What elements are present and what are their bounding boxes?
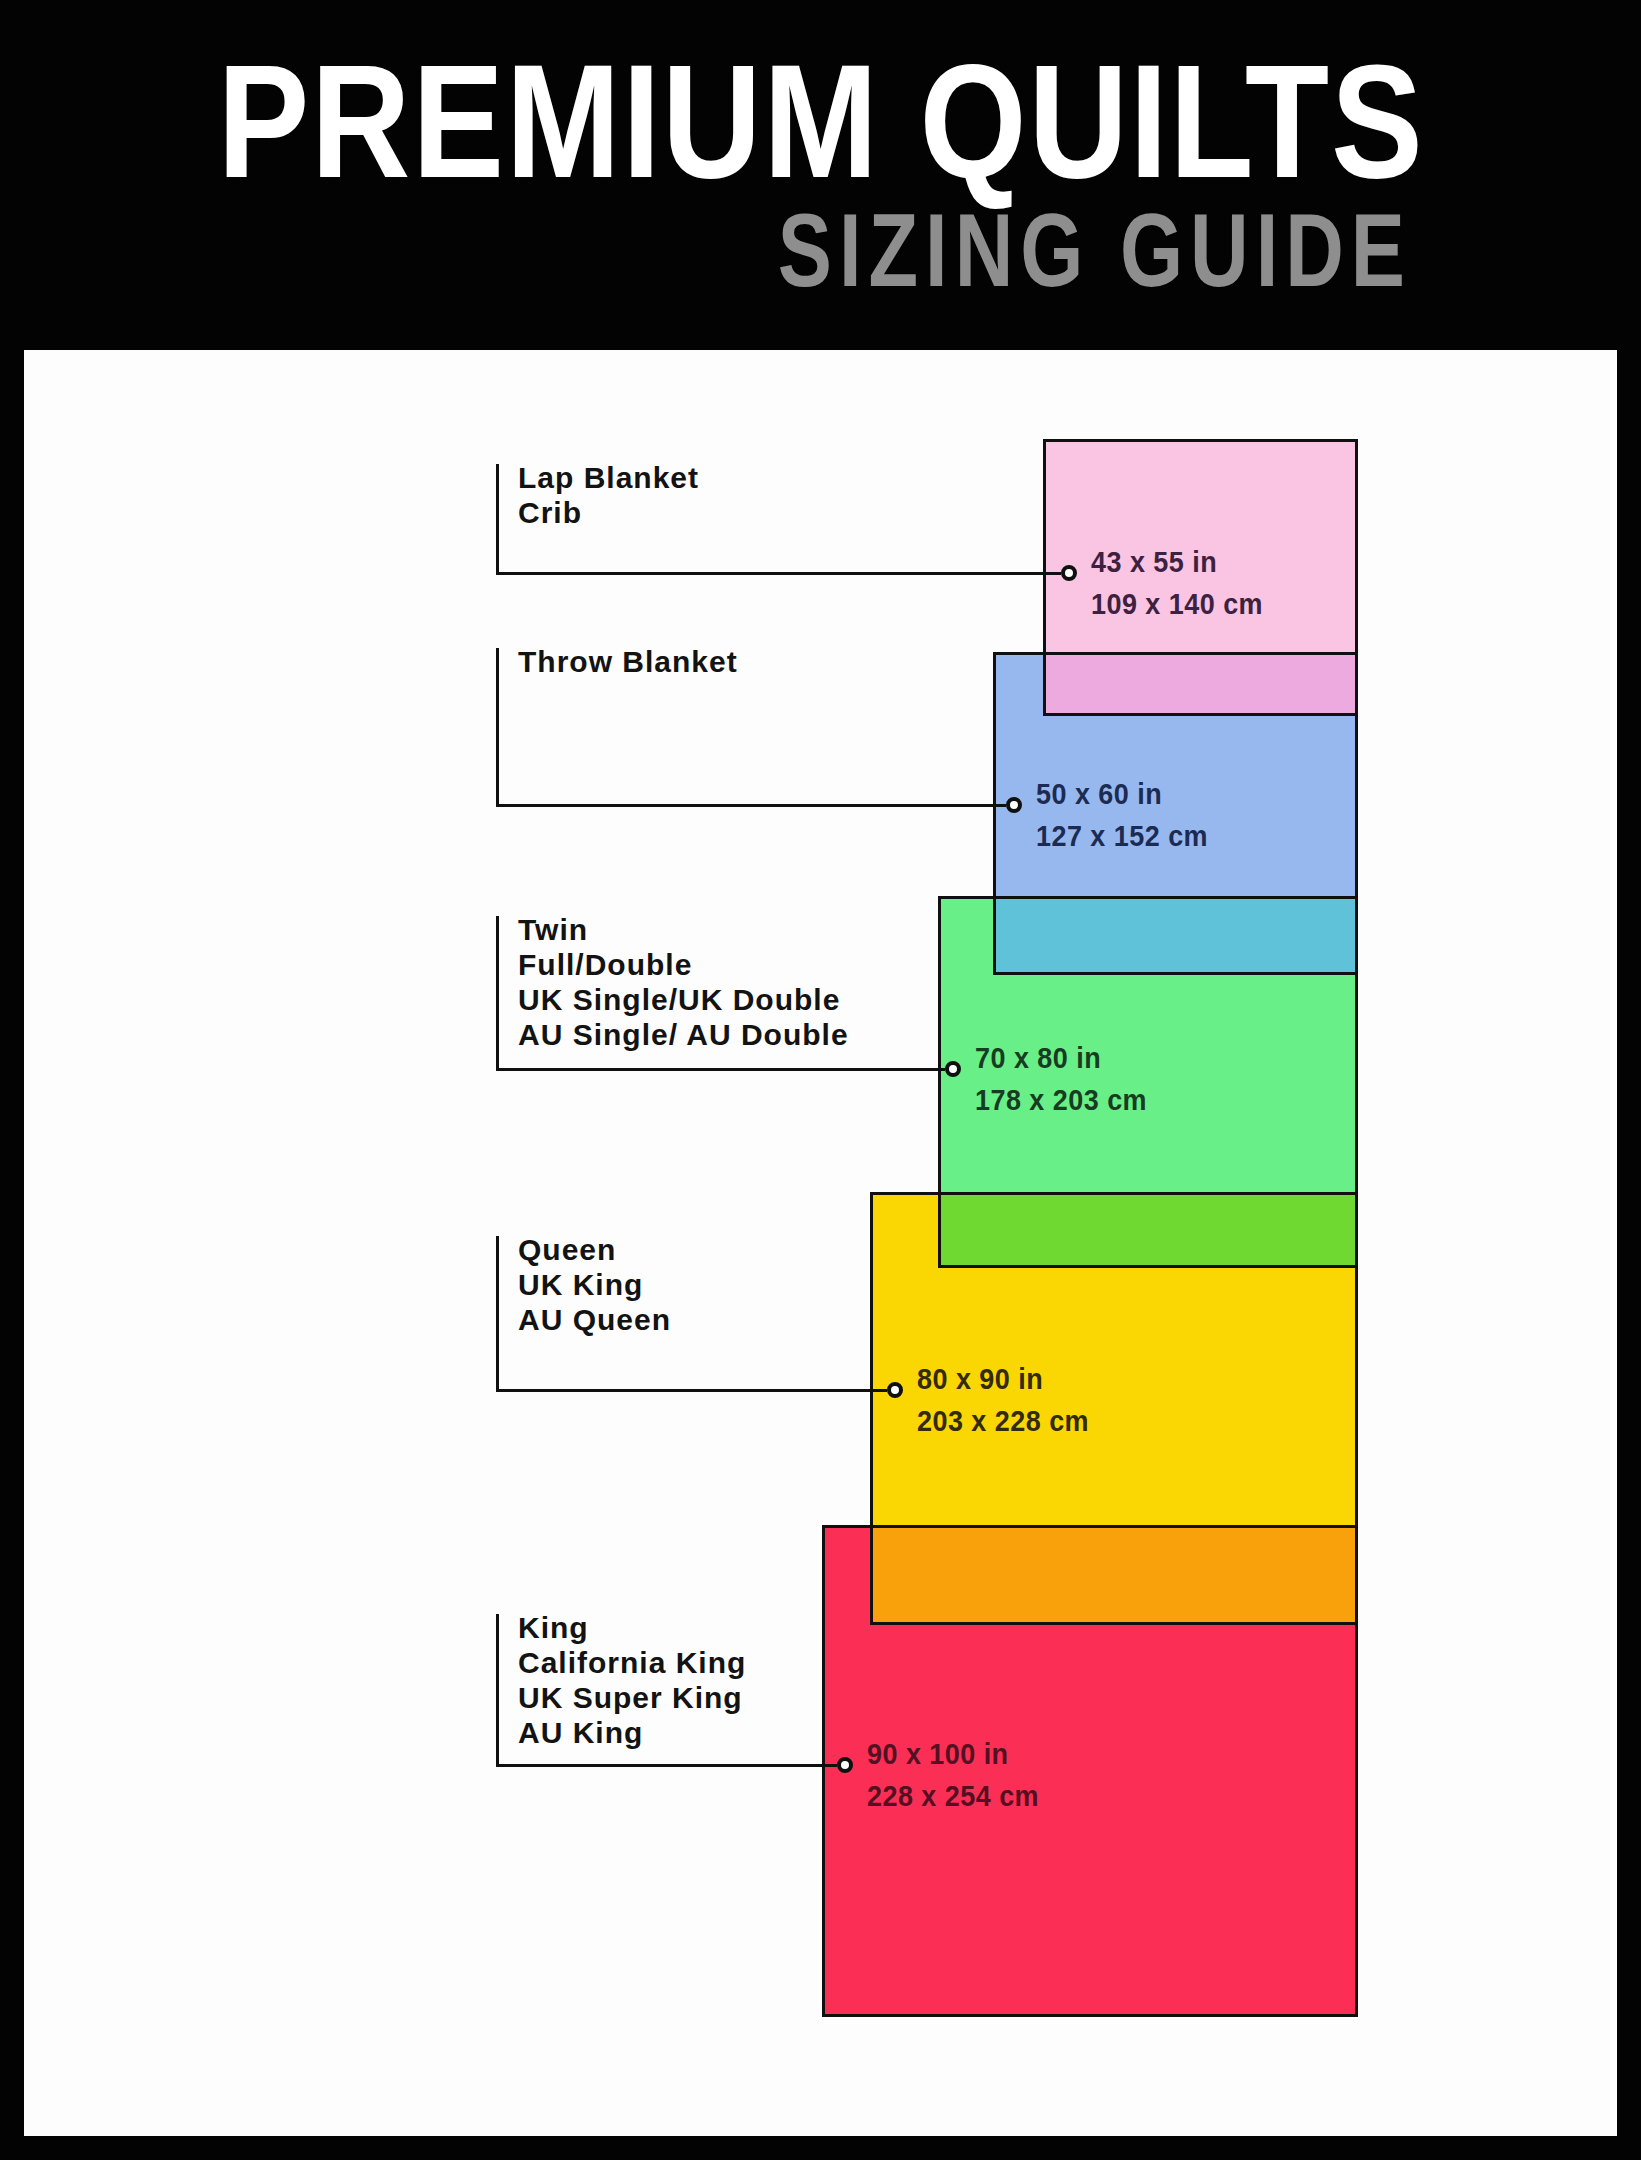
connector-vline-twin-full-double: [496, 916, 499, 1070]
size-label-throw-blanket: Throw Blanket: [518, 644, 738, 679]
size-cm: 109 x 140 cm: [1091, 583, 1263, 625]
size-inches: 50 x 60 in: [1036, 773, 1208, 815]
connector-dot-twin-full-double: [945, 1061, 961, 1077]
size-label-line: AU Single/ AU Double: [518, 1017, 849, 1052]
size-diagram: Lap BlanketCrib43 x 55 in109 x 140 cmThr…: [0, 0, 1641, 2160]
connector-vline-king-california-king: [496, 1614, 499, 1766]
connector-hline-king-california-king: [496, 1764, 837, 1767]
quilt-sizing-infographic: PREMIUM QUILTS SIZING GUIDE Lap BlanketC…: [0, 0, 1641, 2160]
size-inches: 80 x 90 in: [917, 1358, 1089, 1400]
size-label-line: Crib: [518, 495, 699, 530]
size-dimensions-king-california-king: 90 x 100 in228 x 254 cm: [867, 1733, 1039, 1817]
size-cm: 203 x 228 cm: [917, 1400, 1089, 1442]
connector-vline-throw-blanket: [496, 648, 499, 806]
connector-hline-queen-uk-king-au-queen: [496, 1389, 887, 1392]
size-inches: 70 x 80 in: [975, 1037, 1147, 1079]
size-dimensions-twin-full-double: 70 x 80 in178 x 203 cm: [975, 1037, 1147, 1121]
connector-dot-throw-blanket: [1006, 797, 1022, 813]
size-dimensions-lap-blanket-crib: 43 x 55 in109 x 140 cm: [1091, 541, 1263, 625]
size-label-line: AU King: [518, 1715, 746, 1750]
connector-vline-lap-blanket-crib: [496, 464, 499, 574]
connector-hline-twin-full-double: [496, 1068, 945, 1071]
connector-hline-throw-blanket: [496, 804, 1006, 807]
size-label-twin-full-double: TwinFull/DoubleUK Single/UK DoubleAU Sin…: [518, 912, 849, 1052]
size-inches: 43 x 55 in: [1091, 541, 1263, 583]
size-label-line: Lap Blanket: [518, 460, 699, 495]
size-label-line: King: [518, 1610, 746, 1645]
size-cm: 127 x 152 cm: [1036, 815, 1208, 857]
size-label-line: California King: [518, 1645, 746, 1680]
size-label-line: UK Single/UK Double: [518, 982, 849, 1017]
size-label-line: UK Super King: [518, 1680, 746, 1715]
size-dimensions-queen-uk-king-au-queen: 80 x 90 in203 x 228 cm: [917, 1358, 1089, 1442]
size-label-line: Twin: [518, 912, 849, 947]
size-label-lap-blanket-crib: Lap BlanketCrib: [518, 460, 699, 530]
size-label-line: Throw Blanket: [518, 644, 738, 679]
connector-vline-queen-uk-king-au-queen: [496, 1236, 499, 1391]
size-label-line: AU Queen: [518, 1302, 671, 1337]
connector-dot-queen-uk-king-au-queen: [887, 1382, 903, 1398]
connector-hline-lap-blanket-crib: [496, 572, 1061, 575]
size-label-line: Queen: [518, 1232, 671, 1267]
size-cm: 228 x 254 cm: [867, 1775, 1039, 1817]
size-label-line: UK King: [518, 1267, 671, 1302]
size-inches: 90 x 100 in: [867, 1733, 1039, 1775]
size-cm: 178 x 203 cm: [975, 1079, 1147, 1121]
size-dimensions-throw-blanket: 50 x 60 in127 x 152 cm: [1036, 773, 1208, 857]
size-label-queen-uk-king-au-queen: QueenUK KingAU Queen: [518, 1232, 671, 1337]
connector-dot-king-california-king: [837, 1757, 853, 1773]
size-label-king-california-king: KingCalifornia KingUK Super KingAU King: [518, 1610, 746, 1750]
connector-dot-lap-blanket-crib: [1061, 565, 1077, 581]
size-label-line: Full/Double: [518, 947, 849, 982]
